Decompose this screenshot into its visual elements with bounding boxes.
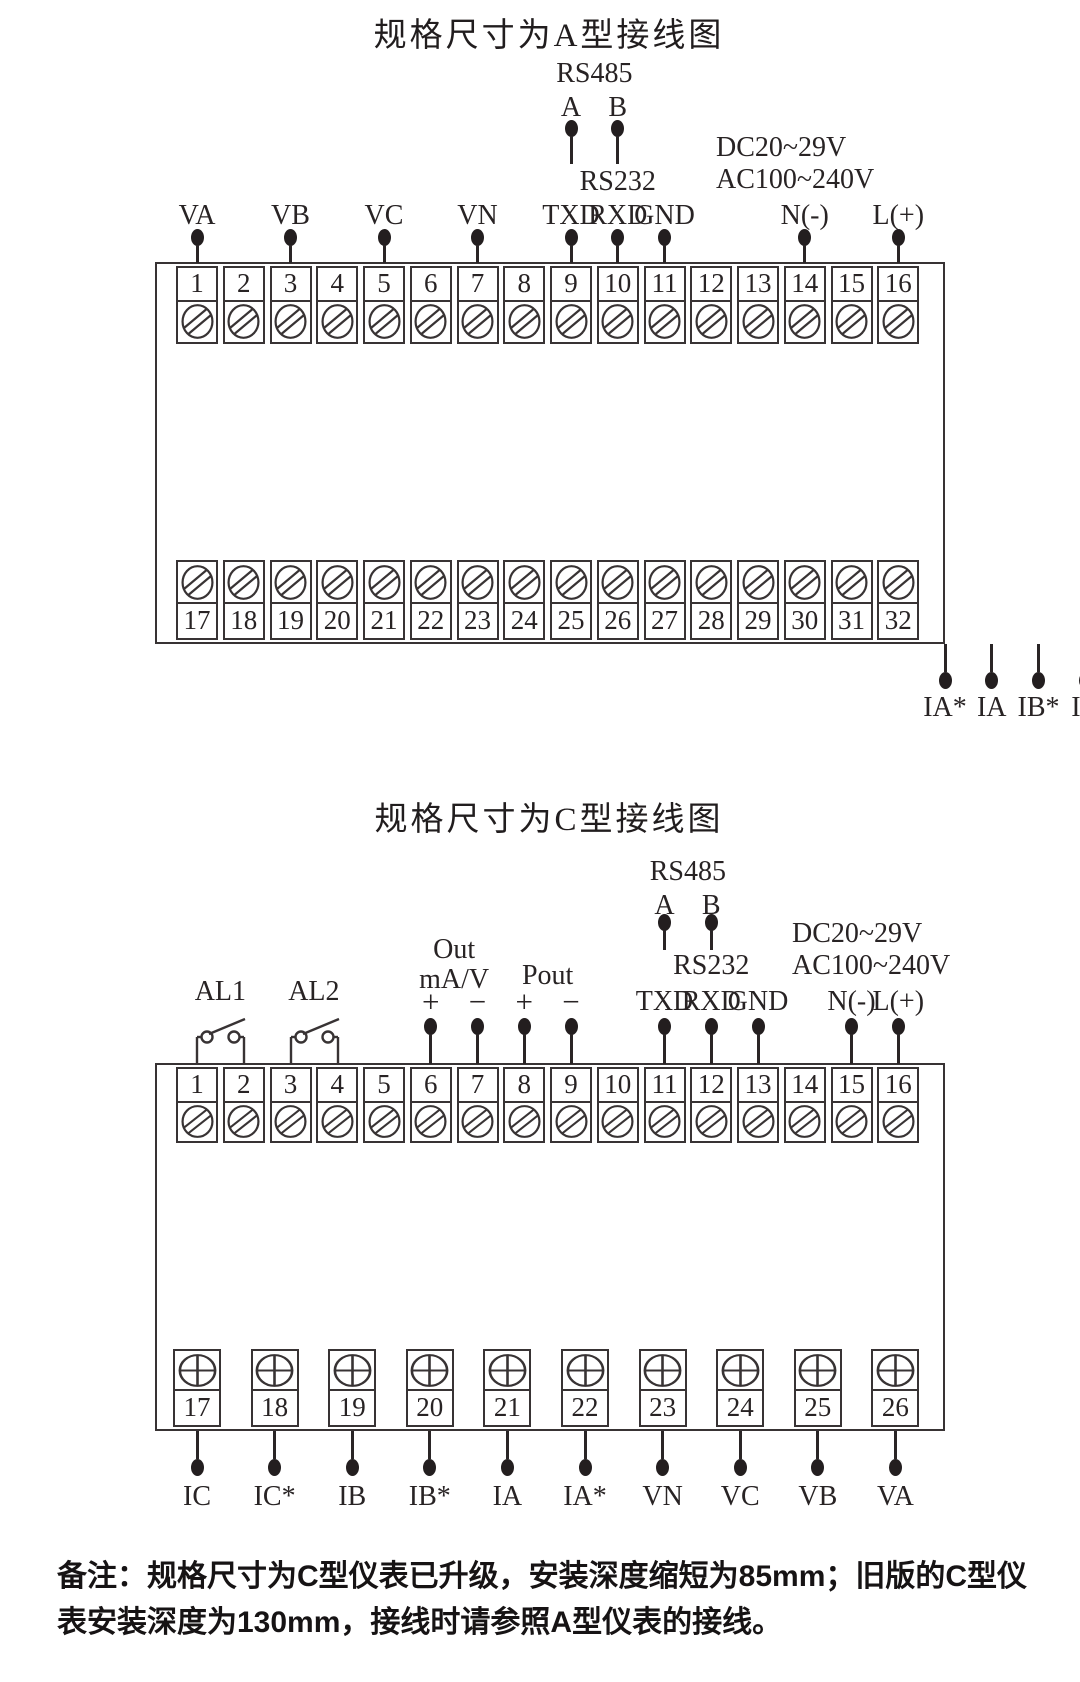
c-bottom-wire-2-dot [346,1459,359,1476]
c-terminal-18-number: 18 [251,1389,299,1427]
c-bottom-wire-1-wire [273,1431,276,1459]
c-top-wire-0-dot [424,1018,437,1035]
c-top-wire-1-dot [471,1018,484,1035]
a-terminal-26-screw-slot-icon [597,560,639,604]
a-terminal-8-screw-slot-icon [503,300,545,344]
c-top-wire-5-wire [710,1034,713,1064]
a-terminal-4-screw-slot-icon [316,300,358,344]
c-terminal-25-number: 25 [794,1389,842,1427]
a-top-wire-7-wire [803,245,806,263]
a-terminal-7-number: 7 [457,266,499,302]
c-top-wire-3-wire [570,1034,573,1064]
a-terminal-27-number: 27 [644,602,686,640]
c-top-wire-8-dot [892,1018,905,1035]
c-terminal-21-screw-cross-icon [483,1349,531,1391]
a-bottom-wire-2-dot [1032,672,1045,689]
a-rs485-label: RS485 [504,58,684,90]
c-terminal-12-number: 12 [690,1067,732,1103]
c-terminal-10-screw-slot-icon [597,1101,639,1143]
c-bottom-wire-8-dot [811,1459,824,1476]
c-terminal-26-number: 26 [871,1389,919,1427]
a-terminal-25-number: 25 [550,602,592,640]
c-terminal-24-number: 24 [716,1389,764,1427]
a-terminal-2-screw-slot-icon [223,300,265,344]
c-power-ac: AC100~240V [792,950,1072,982]
a-terminal-29-screw-slot-icon [737,560,779,604]
c-terminal-19-screw-cross-icon [328,1349,376,1391]
c-terminal-14-screw-slot-icon [784,1101,826,1143]
a-terminal-20-number: 20 [316,602,358,640]
a-terminal-30-screw-slot-icon [784,560,826,604]
a-terminal-27-screw-slot-icon [644,560,686,604]
c-terminal-21-number: 21 [483,1389,531,1427]
c-top-wire-3-dot [565,1018,578,1035]
a-top-wire-1-wire [289,245,292,263]
a-terminal-32-screw-slot-icon [877,560,919,604]
a-terminal-19-number: 19 [270,602,312,640]
a-terminal-16-number: 16 [877,266,919,302]
a-rs485-b-wire [616,136,619,164]
c-terminal-19-number: 19 [328,1389,376,1427]
c-terminal-23-screw-cross-icon [639,1349,687,1391]
a-terminal-5-number: 5 [363,266,405,302]
c-top-wire-4-wire [663,1034,666,1064]
c-terminal-2-screw-slot-icon [223,1101,265,1143]
a-terminal-2-number: 2 [223,266,265,302]
c-bottom-wire-7-wire [739,1431,742,1459]
a-power-dc: DC20~29V [716,132,996,164]
c-bottom-wire-1-dot [268,1459,281,1476]
c-top-wire-8-wire [897,1034,900,1064]
a-terminal-23-screw-slot-icon [457,560,499,604]
c-terminal-13-number: 13 [737,1067,779,1103]
c-terminal-20-number: 20 [406,1389,454,1427]
c-terminal-12-screw-slot-icon [690,1101,732,1143]
note-text: 规格尺寸为C型仪表已升级，安装深度缩短为85mm；旧版的C型仪表安装深度为130… [57,1560,1027,1639]
c-terminal-8-number: 8 [503,1067,545,1103]
a-terminal-3-screw-slot-icon [270,300,312,344]
c-terminal-5-number: 5 [363,1067,405,1103]
c-bottom-wire-0-dot [191,1459,204,1476]
c-terminal-25-screw-cross-icon [794,1349,842,1391]
c-switch-0-contact-icon [189,1011,252,1064]
c-terminal-4-number: 4 [316,1067,358,1103]
a-terminal-11-screw-slot-icon [644,300,686,344]
a-terminal-17-number: 17 [176,602,218,640]
a-terminal-12-number: 12 [690,266,732,302]
a-terminal-26-number: 26 [597,602,639,640]
a-top-wire-5-wire [616,245,619,263]
a-terminal-12-screw-slot-icon [690,300,732,344]
c-bottom-wire-5-dot [579,1459,592,1476]
c-terminal-2-number: 2 [223,1067,265,1103]
c-terminal-11-screw-slot-icon [644,1101,686,1143]
c-terminal-16-number: 16 [877,1067,919,1103]
c-terminal-24-screw-cross-icon [716,1349,764,1391]
a-rs485-b-dot [611,120,624,137]
a-terminal-31-number: 31 [831,602,873,640]
c-bottom-wire-2-wire [351,1431,354,1459]
a-terminal-20-screw-slot-icon [316,560,358,604]
a-terminal-21-screw-slot-icon [363,560,405,604]
c-terminal-3-screw-slot-icon [270,1101,312,1143]
c-bottom-wire-4-dot [501,1459,514,1476]
c-terminal-6-screw-slot-icon [410,1101,452,1143]
a-bottom-wire-2-wire [1037,644,1040,672]
a-bottom-wire-0-dot [939,672,952,689]
a-terminal-18-screw-slot-icon [223,560,265,604]
c-top-wire-7-dot [845,1018,858,1035]
c-rs485-b-wire [710,930,713,950]
a-terminal-18-number: 18 [223,602,265,640]
a-terminal-17-screw-slot-icon [176,560,218,604]
a-terminal-1-number: 1 [176,266,218,302]
c-bottom-wire-3-wire [428,1431,431,1459]
a-terminal-24-number: 24 [503,602,545,640]
c-terminal-1-number: 1 [176,1067,218,1103]
c-terminal-26-screw-cross-icon [871,1349,919,1391]
c-top-wire-5-dot [705,1018,718,1035]
a-terminal-5-screw-slot-icon [363,300,405,344]
c-bottom-wire-6-wire [661,1431,664,1459]
c-top-wire-7-wire [850,1034,853,1064]
a-top-wire-4-wire [570,245,573,263]
a-terminal-14-screw-slot-icon [784,300,826,344]
c-terminal-9-screw-slot-icon [550,1101,592,1143]
a-terminal-13-screw-slot-icon [737,300,779,344]
c-terminal-4-screw-slot-icon [316,1101,358,1143]
a-terminal-16-screw-slot-icon [877,300,919,344]
c-terminal-7-number: 7 [457,1067,499,1103]
a-terminal-15-number: 15 [831,266,873,302]
a-terminal-7-screw-slot-icon [457,300,499,344]
a-top-wire-6-wire [663,245,666,263]
c-bottom-wire-0-wire [196,1431,199,1459]
a-terminal-6-number: 6 [410,266,452,302]
a-terminal-31-screw-slot-icon [831,560,873,604]
a-top-wire-3-wire [476,245,479,263]
c-bottom-wire-3-dot [423,1459,436,1476]
note: 备注：规格尺寸为C型仪表已升级，安装深度缩短为85mm；旧版的C型仪表安装深度为… [57,1554,1047,1646]
a-terminal-14-number: 14 [784,266,826,302]
a-terminal-24-screw-slot-icon [503,560,545,604]
a-terminal-28-number: 28 [690,602,732,640]
c-terminal-8-screw-slot-icon [503,1101,545,1143]
c-bottom-wire-6-dot [656,1459,669,1476]
a-terminal-13-number: 13 [737,266,779,302]
a-terminal-11-number: 11 [644,266,686,302]
a-terminal-8-number: 8 [503,266,545,302]
c-terminal-10-number: 10 [597,1067,639,1103]
a-terminal-10-screw-slot-icon [597,300,639,344]
diagram-a-title: 规格尺寸为A型接线图 [149,8,949,56]
c-bottom-wire-8-wire [816,1431,819,1459]
a-rs485-a-dot [565,120,578,137]
c-terminal-20-screw-cross-icon [406,1349,454,1391]
c-terminal-3-number: 3 [270,1067,312,1103]
c-terminal-23-number: 23 [639,1389,687,1427]
c-bottom-wire-4-wire [506,1431,509,1459]
a-top-wire-6-dot [658,229,671,246]
c-terminal-5-screw-slot-icon [363,1101,405,1143]
c-rs232-label: RS232 [621,950,801,982]
a-rs232-label: RS232 [528,166,708,198]
wiring-diagram-sheet: 规格尺寸为A型接线图 规格尺寸为C型接线图 123456789101112131… [0,0,1080,1682]
a-terminal-1-screw-slot-icon [176,300,218,344]
c-terminal-17-screw-cross-icon [173,1349,221,1391]
diagram-c-title: 规格尺寸为C型接线图 [149,792,949,840]
a-bottom-wire-1-dot [985,672,998,689]
c-rs485-a-dot [658,914,671,931]
a-bottom-wire-1-wire [990,644,993,672]
a-bottom-wire-0-wire [944,644,947,672]
c-switch-1-contact-icon [283,1011,346,1064]
c-terminal-15-number: 15 [831,1067,873,1103]
a-top-wire-8-dot [892,229,905,246]
c-bottom-wire-9-label: VA [805,1481,985,1513]
a-terminal-29-number: 29 [737,602,779,640]
c-top-wire-2-wire [523,1034,526,1064]
c-top-wire-8-label: L(+) [808,986,988,1018]
c-terminal-22-screw-cross-icon [561,1349,609,1391]
a-top-wire-2-wire [383,245,386,263]
c-power-dc: DC20~29V [792,918,1072,950]
c-top-wire-4-dot [658,1018,671,1035]
c-top-wire-1-wire [476,1034,479,1064]
a-terminal-9-number: 9 [550,266,592,302]
a-terminal-15-screw-slot-icon [831,300,873,344]
c-terminal-7-screw-slot-icon [457,1101,499,1143]
a-terminal-30-number: 30 [784,602,826,640]
a-top-wire-8-wire [897,245,900,263]
c-terminal-17-number: 17 [173,1389,221,1427]
a-bottom-wire-4-label: IC* [1042,692,1080,724]
c-bottom-wire-7-dot [734,1459,747,1476]
a-terminal-23-number: 23 [457,602,499,640]
c-bottom-wire-9-wire [894,1431,897,1459]
c-terminal-9-number: 9 [550,1067,592,1103]
c-top-wire-6-wire [757,1034,760,1064]
a-top-wire-8-label: L(+) [808,200,988,232]
a-terminal-3-number: 3 [270,266,312,302]
a-terminal-22-number: 22 [410,602,452,640]
c-top-wire-6-dot [752,1018,765,1035]
c-top-wire-0-wire [429,1034,432,1064]
c-terminal-6-number: 6 [410,1067,452,1103]
c-bottom-wire-5-wire [584,1431,587,1459]
a-terminal-25-screw-slot-icon [550,560,592,604]
a-power-ac: AC100~240V [716,164,996,196]
a-terminal-32-number: 32 [877,602,919,640]
a-terminal-28-screw-slot-icon [690,560,732,604]
a-terminal-9-screw-slot-icon [550,300,592,344]
c-top-wire-2-dot [518,1018,531,1035]
a-terminal-19-screw-slot-icon [270,560,312,604]
c-terminal-14-number: 14 [784,1067,826,1103]
a-top-wire-0-wire [196,245,199,263]
c-terminal-1-screw-slot-icon [176,1101,218,1143]
a-terminal-10-number: 10 [597,266,639,302]
a-terminal-22-screw-slot-icon [410,560,452,604]
c-terminal-15-screw-slot-icon [831,1101,873,1143]
c-terminal-13-screw-slot-icon [737,1101,779,1143]
note-label: 备注： [57,1560,147,1593]
c-rs485-b-dot [705,914,718,931]
c-terminal-18-screw-cross-icon [251,1349,299,1391]
c-terminal-11-number: 11 [644,1067,686,1103]
a-rs485-a-wire [570,136,573,164]
a-terminal-21-number: 21 [363,602,405,640]
c-terminal-16-screw-slot-icon [877,1101,919,1143]
c-rs485-label: RS485 [598,856,778,888]
c-bottom-wire-9-dot [889,1459,902,1476]
c-rs485-a-wire [663,930,666,950]
a-terminal-6-screw-slot-icon [410,300,452,344]
c-terminal-22-number: 22 [561,1389,609,1427]
a-terminal-4-number: 4 [316,266,358,302]
